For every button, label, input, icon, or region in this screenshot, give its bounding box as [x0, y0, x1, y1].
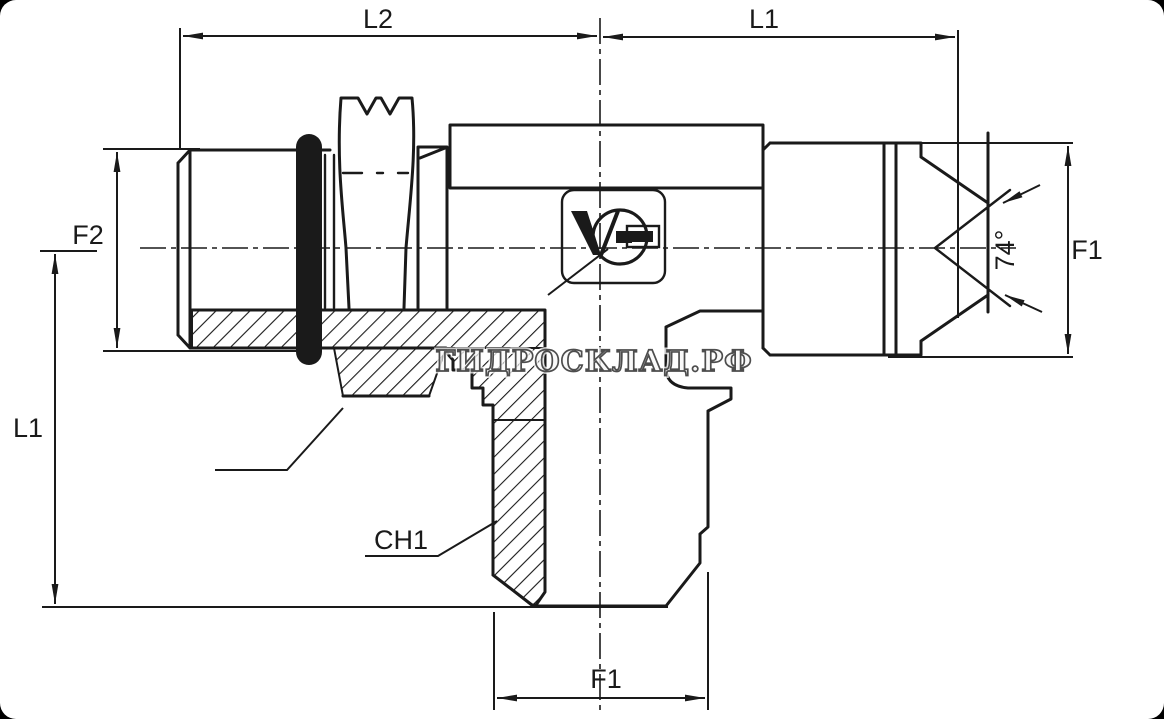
dim-label-f2-left: F2: [72, 220, 104, 250]
watermark-text: ГИДРОСКЛАД.РФ: [435, 344, 752, 378]
dim-label-l2-top: L2: [363, 4, 393, 34]
logo-g-bar-inner: [632, 231, 653, 242]
washer-outline: [418, 147, 447, 308]
locknut-midline: [325, 155, 408, 308]
dim-label-f1-bottom: F1: [590, 664, 622, 694]
logo-g-bar-fill: [616, 231, 632, 243]
locknut-crown: [339, 98, 413, 308]
leader-angle-lower: [1005, 295, 1042, 312]
screenshot-frame: L2 L1 F2 L1 F1 74° CH1 F1 ГИДРОСКЛАД.РФ …: [0, 0, 1164, 719]
hatch-nut-section: [334, 348, 446, 396]
dim-label-l1-left: L1: [13, 413, 43, 443]
drawing-canvas: L2 L1 F2 L1 F1 74° CH1 F1 ГИДРОСКЛАД.РФ …: [0, 0, 1164, 719]
logo-leader-line: [548, 249, 608, 295]
technical-drawing: L2 L1 F2 L1 F1 74° CH1 F1 ГИДРОСКЛАД.РФ …: [0, 0, 1164, 719]
hatch-tube-wall: [192, 310, 545, 348]
seal-ring: [296, 134, 322, 365]
dim-label-f1-right: F1: [1071, 235, 1103, 265]
dim-label-l1-top: L1: [749, 4, 779, 34]
dim-label-ch1: CH1: [374, 525, 428, 555]
watermark: ГИДРОСКЛАД.РФ ГИДРОСКЛАД.РФ: [435, 344, 752, 378]
right-thread-outline: [763, 133, 988, 355]
hatch-branch-wall: [493, 420, 545, 605]
logo-vg: [548, 190, 665, 295]
dim-label-angle-74: 74°: [990, 230, 1020, 271]
leader-angle-upper: [1003, 185, 1040, 203]
leader-nut: [215, 408, 343, 470]
